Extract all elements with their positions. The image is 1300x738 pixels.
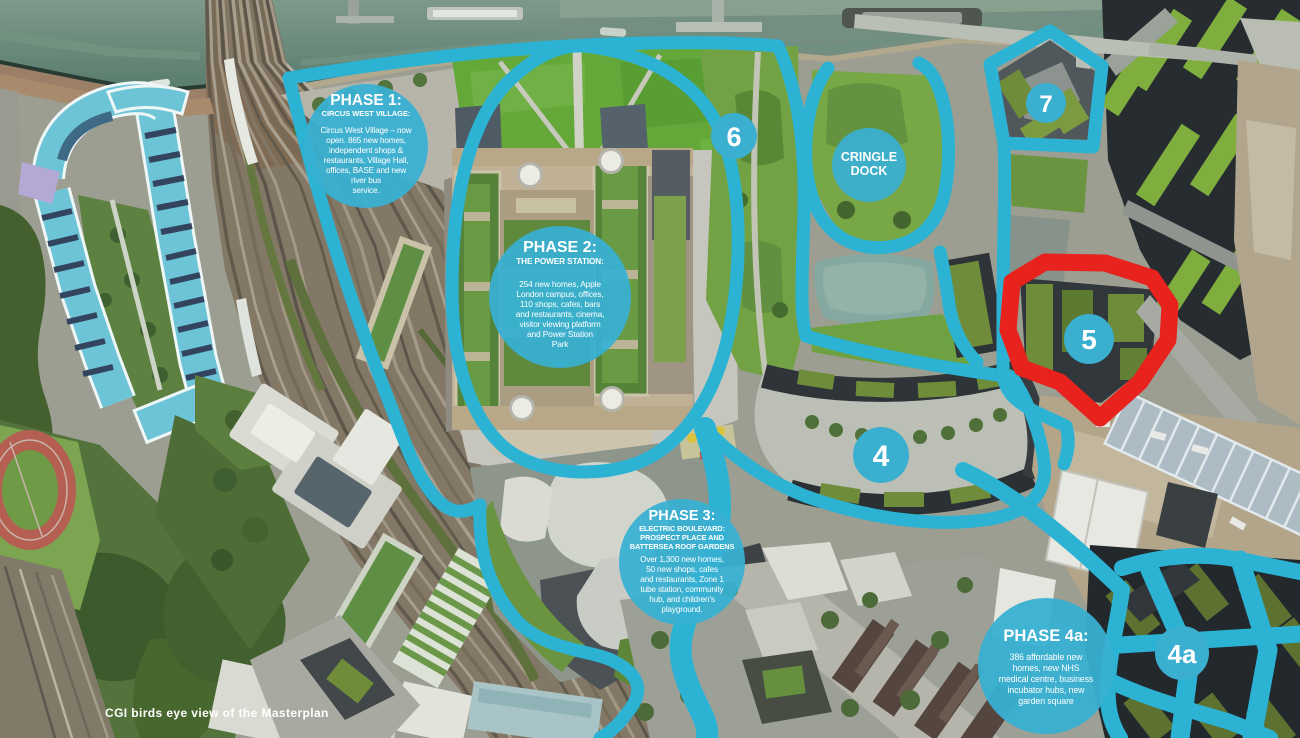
svg-text:independent shops &: independent shops &: [329, 146, 404, 155]
svg-text:Over 1,300 new homes,: Over 1,300 new homes,: [640, 555, 724, 564]
svg-text:CIRCUS WEST VILLAGE:: CIRCUS WEST VILLAGE:: [322, 109, 411, 118]
svg-text:visitor viewing platform: visitor viewing platform: [519, 319, 600, 329]
svg-text:incubator hubs, new: incubator hubs, new: [1008, 685, 1086, 695]
svg-text:PHASE 4a:: PHASE 4a:: [1003, 627, 1088, 645]
svg-text:London campus, offices,: London campus, offices,: [516, 289, 603, 299]
svg-text:open. 865 new homes,: open. 865 new homes,: [326, 136, 406, 145]
svg-text:DOCK: DOCK: [851, 164, 888, 178]
svg-text:and restaurants, Zone 1: and restaurants, Zone 1: [640, 575, 724, 584]
svg-text:Circus West Village – now: Circus West Village – now: [320, 126, 411, 135]
svg-text:386 affordable new: 386 affordable new: [1010, 652, 1084, 662]
svg-text:service.: service.: [352, 186, 379, 195]
svg-text:CRINGLE: CRINGLE: [841, 150, 897, 164]
svg-text:PROSPECT PLACE AND: PROSPECT PLACE AND: [640, 533, 725, 542]
svg-text:tube station, community: tube station, community: [640, 585, 724, 594]
svg-text:4: 4: [873, 440, 890, 473]
svg-text:6: 6: [726, 122, 741, 152]
svg-text:garden square: garden square: [1018, 696, 1074, 706]
svg-text:PHASE 1:: PHASE 1:: [330, 92, 402, 109]
svg-text:and restaurants, cinema,: and restaurants, cinema,: [516, 309, 605, 319]
svg-text:Park: Park: [552, 339, 570, 349]
svg-text:110 shops, cafes, bars: 110 shops, cafes, bars: [520, 299, 600, 309]
svg-text:hub, and children's: hub, and children's: [649, 595, 715, 604]
svg-text:homes, new NHS: homes, new NHS: [1012, 663, 1079, 673]
svg-text:ELECTRIC BOULEVARD:: ELECTRIC BOULEVARD:: [639, 524, 725, 533]
svg-text:and Power Station: and Power Station: [527, 329, 593, 339]
svg-text:BATTERSEA ROOF GARDENS: BATTERSEA ROOF GARDENS: [630, 542, 735, 551]
svg-text:THE POWER STATION:: THE POWER STATION:: [516, 257, 604, 266]
svg-text:medical centre, business: medical centre, business: [999, 674, 1094, 684]
svg-text:5: 5: [1081, 324, 1097, 355]
svg-text:CGI birds eye view of the Mast: CGI birds eye view of the Masterplan: [105, 706, 329, 720]
svg-text:river bus: river bus: [351, 176, 381, 185]
svg-text:4a: 4a: [1168, 639, 1197, 669]
svg-text:playground.: playground.: [661, 605, 702, 614]
svg-text:7: 7: [1039, 91, 1052, 118]
svg-text:254 new homes, Apple: 254 new homes, Apple: [519, 279, 601, 289]
svg-text:PHASE 2:: PHASE 2:: [523, 239, 597, 256]
svg-text:restaurants, Village Hall,: restaurants, Village Hall,: [324, 156, 409, 165]
svg-text:PHASE 3:: PHASE 3:: [649, 508, 716, 524]
svg-text:50 new shops, cafes: 50 new shops, cafes: [646, 565, 718, 574]
svg-text:offices, BASE and new: offices, BASE and new: [326, 166, 406, 175]
